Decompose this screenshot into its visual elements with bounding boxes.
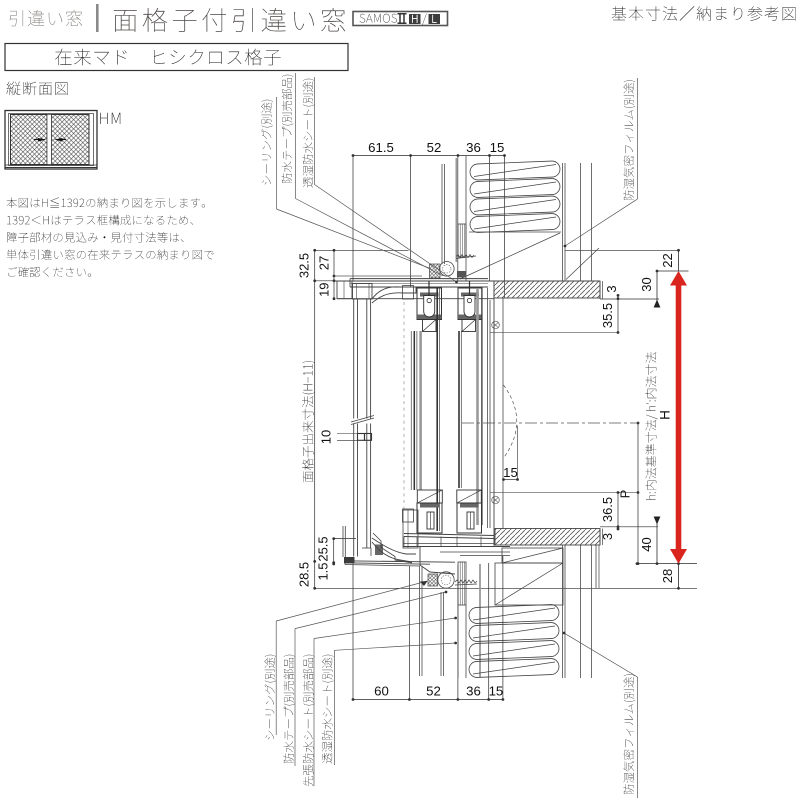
- svg-text:35.5: 35.5: [600, 303, 615, 328]
- svg-text:60: 60: [374, 684, 389, 699]
- svg-text:61.5: 61.5: [368, 140, 394, 155]
- svg-text:28.5: 28.5: [297, 562, 312, 587]
- svg-text:3: 3: [604, 285, 619, 292]
- svg-text:32.5: 32.5: [297, 253, 312, 278]
- svg-text:36: 36: [466, 140, 481, 155]
- svg-text:25.5: 25.5: [316, 536, 331, 561]
- svg-text:22: 22: [660, 253, 675, 267]
- svg-text:15: 15: [503, 465, 518, 480]
- svg-text:15: 15: [489, 684, 504, 699]
- svg-text:52: 52: [427, 140, 442, 155]
- svg-text:27: 27: [317, 256, 332, 270]
- svg-text:36.5: 36.5: [600, 497, 615, 522]
- svg-text:15: 15: [490, 140, 505, 155]
- svg-text:36: 36: [466, 684, 481, 699]
- svg-text:1.5: 1.5: [316, 562, 331, 580]
- svg-text:52: 52: [426, 684, 441, 699]
- svg-text:H: H: [658, 410, 673, 420]
- svg-text:10: 10: [319, 430, 334, 444]
- svg-text:30: 30: [639, 277, 654, 291]
- svg-text:19: 19: [317, 282, 332, 296]
- svg-text:40: 40: [639, 537, 654, 551]
- svg-text:P: P: [618, 490, 633, 499]
- svg-text:28: 28: [660, 569, 675, 583]
